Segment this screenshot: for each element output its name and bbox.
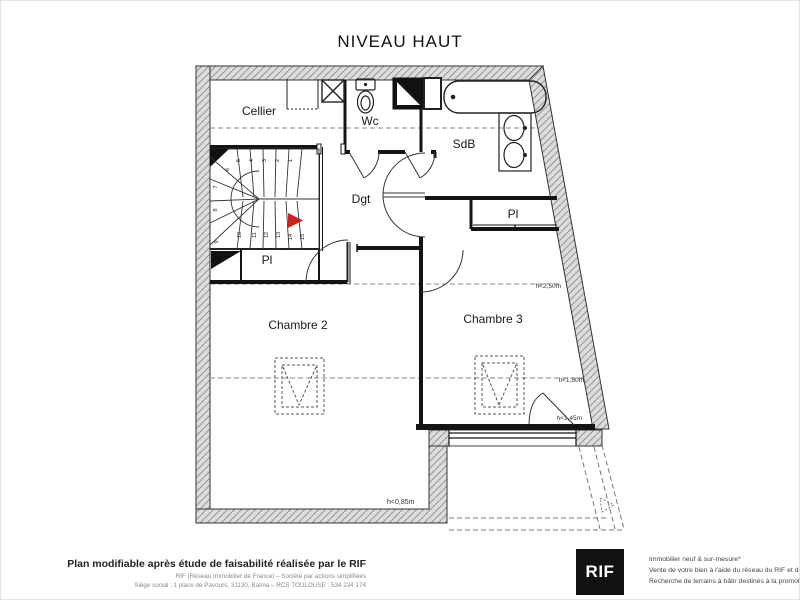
stair-step-number: 4	[249, 159, 255, 162]
stair-step-number: 15	[300, 234, 306, 240]
footer-company-line: RIF (Réseau Immobilier de France) – Soci…	[56, 573, 366, 582]
roof-arrow-mark	[600, 498, 614, 512]
red-direction-arrow	[288, 213, 303, 228]
under-stair-fill	[211, 251, 241, 269]
rif-logo: RIF	[576, 549, 624, 595]
footer-service-line: Vente de votre bien à l'aide du réseau d…	[649, 565, 799, 576]
height-label-085: h<0,85m	[387, 499, 415, 506]
doors	[306, 152, 574, 425]
room-label-wc: Wc	[361, 114, 378, 128]
room-label-pl-right: Pl	[508, 207, 519, 221]
footer-plan-note: Plan modifiable après étude de faisabili…	[56, 558, 366, 570]
washing-machine-icon	[322, 80, 344, 102]
stair-step-number: 6	[225, 168, 231, 171]
double-washbasin-icon	[499, 113, 531, 171]
velux-roof-windows	[275, 356, 524, 414]
duct-icon	[393, 78, 424, 109]
window-jamb-right	[576, 430, 602, 446]
left-wall	[196, 66, 210, 523]
footer-services-block: Immobilier neuf & sur-mesure* Vente de v…	[649, 554, 799, 587]
appliance-slot	[287, 79, 318, 109]
stair-step-number: 8	[213, 208, 219, 211]
floor-plan: 1 2 3 4 5 6 7 8 9 10 11 12 13 14 15	[1, 1, 800, 546]
stair-step-number: 13	[276, 232, 282, 238]
bottom-left-wall	[196, 446, 447, 523]
height-label-180: h<1,80m	[559, 377, 584, 384]
toilet-icon	[356, 79, 375, 113]
stair-step-number: 11	[252, 232, 258, 238]
floor-plan-page: NIVEAU HAUT	[0, 0, 800, 600]
door-arc-chambre3	[421, 250, 463, 292]
room-label-dgt: Dgt	[352, 192, 371, 206]
roof-outline-dashed	[449, 445, 624, 530]
stair-step-number: 12	[264, 232, 270, 238]
velux-roof-window	[475, 356, 524, 414]
footer-service-line: Recherche de terrains à bâtir destinés à…	[649, 576, 799, 587]
outer-walls	[196, 66, 609, 523]
stair-step-number: 3	[262, 159, 268, 162]
height-label-145: h<1,45m	[557, 415, 582, 422]
footer: Plan modifiable après étude de faisabili…	[1, 544, 800, 600]
door-arc-wc	[349, 152, 379, 178]
right-slanted-wall	[529, 66, 609, 429]
room-label-pl-left: Pl	[262, 253, 273, 267]
top-wall	[196, 66, 543, 80]
stair-step-number: 1	[288, 159, 294, 162]
door-arc-double-swing	[383, 153, 425, 237]
stair-step-number: 10	[237, 232, 243, 238]
room-label-chambre3: Chambre 3	[463, 312, 523, 326]
stair-step-numbers: 1 2 3 4 5 6 7 8 9 10 11 12 13 14 15	[213, 159, 306, 244]
room-label-sdb: SdB	[453, 137, 476, 151]
window	[449, 430, 576, 446]
stair-step-number: 2	[275, 159, 281, 162]
footer-legal-block: Plan modifiable après étude de faisabili…	[56, 558, 366, 590]
stair-step-number: 7	[213, 185, 219, 188]
footer-service-line: Immobilier neuf & sur-mesure*	[649, 554, 799, 565]
staircase: 1 2 3 4 5 6 7 8 9 10 11 12 13 14 15	[210, 149, 319, 249]
height-label-250: h<2,50m	[536, 283, 561, 290]
stair-step-number: 9	[214, 240, 220, 243]
footer-address-line: Siège social : 1 place de Pavours, 31130…	[56, 582, 366, 591]
stair-step-number: 5	[236, 159, 242, 162]
room-label-cellier: Cellier	[242, 104, 276, 118]
room-labels: Cellier Wc SdB Dgt Pl Pl Chambre 2 Chamb…	[242, 104, 523, 332]
velux-roof-window	[275, 358, 324, 414]
room-label-chambre2: Chambre 2	[268, 318, 328, 332]
wall-post	[424, 78, 441, 109]
stair-step-number: 14	[288, 234, 294, 240]
window-jamb-left	[429, 430, 449, 446]
fixtures	[287, 78, 546, 171]
